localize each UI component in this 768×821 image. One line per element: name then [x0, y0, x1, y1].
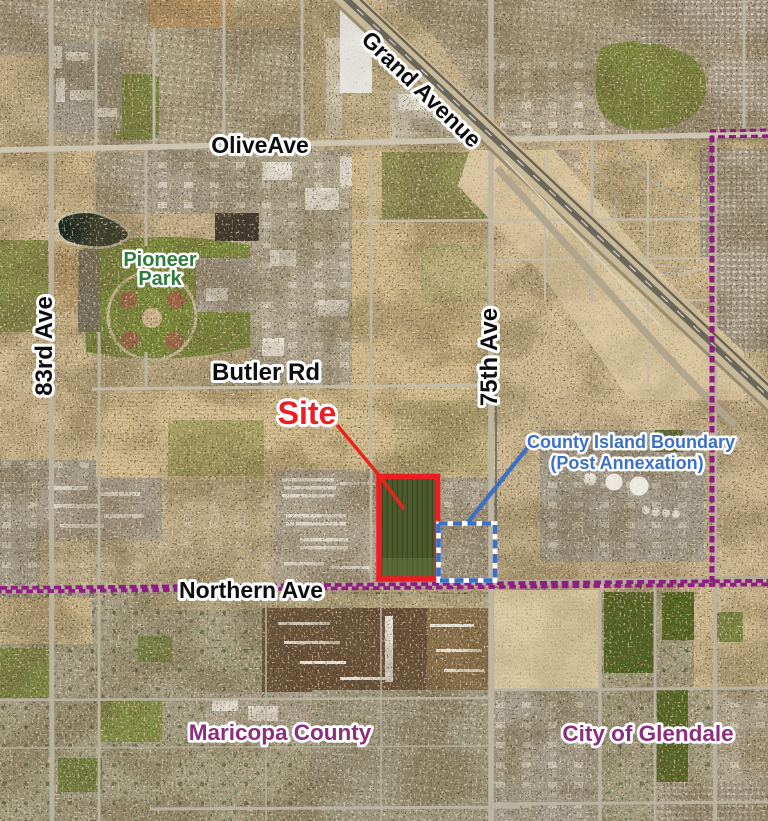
svg-text:Northern Ave: Northern Ave	[179, 577, 323, 603]
svg-text:75th Ave: 75th Ave	[476, 308, 503, 406]
svg-text:83rd Ave: 83rd Ave	[31, 296, 58, 396]
svg-text:Butler Rd: Butler Rd	[212, 359, 320, 386]
svg-text:(Post Annexation): (Post Annexation)	[550, 453, 703, 473]
svg-text:County Island Boundary: County Island Boundary	[527, 432, 735, 452]
svg-text:City of Glendale: City of Glendale	[562, 721, 733, 746]
svg-text:OliveAve: OliveAve	[211, 132, 309, 158]
svg-text:Site: Site	[278, 395, 337, 431]
svg-text:Maricopa County: Maricopa County	[189, 720, 372, 745]
svg-text:Park: Park	[138, 268, 182, 290]
